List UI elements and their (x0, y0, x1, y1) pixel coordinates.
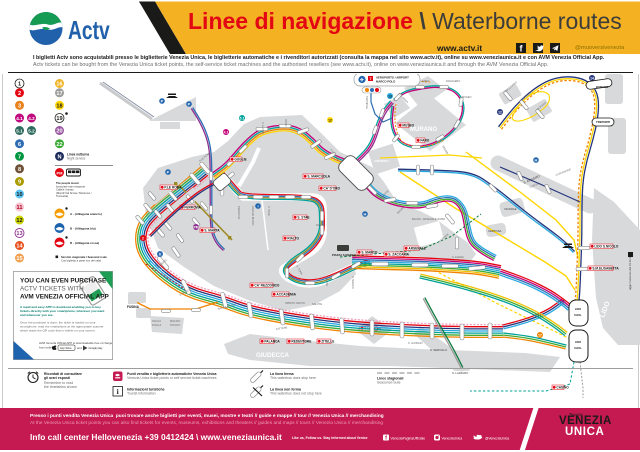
svg-text:ACCADEMIA: ACCADEMIA (276, 293, 296, 297)
svg-text:STUCKY: STUCKY (170, 323, 181, 327)
svg-text:S. ZACCARIA: S. ZACCARIA (388, 253, 409, 257)
svg-text:S.M.E.: S.M.E. (574, 346, 582, 350)
svg-text:S. STAE: S. STAE (267, 206, 271, 216)
svg-text:14: 14 (590, 76, 594, 80)
svg-text:gli orari esposti: gli orari esposti (44, 376, 70, 380)
svg-text:Seasonal route: Seasonal route (377, 381, 401, 385)
svg-text:13: 13 (16, 231, 22, 237)
svg-text:PM: PM (193, 225, 198, 229)
svg-text:Night service: Night service (67, 157, 86, 161)
svg-text:3: 3 (18, 103, 21, 109)
svg-text:18: 18 (56, 103, 62, 109)
svg-text:VIGNOLE: VIGNOLE (504, 207, 517, 211)
svg-text:8: 8 (18, 167, 21, 173)
svg-text:and whenever you are.: and whenever you are. (20, 313, 53, 317)
svg-text:S. ELENA: S. ELENA (452, 255, 464, 259)
svg-text:Google play: Google play (89, 346, 104, 350)
svg-text:This waterbus does stop here: This waterbus does stop here (270, 376, 316, 380)
svg-text:RIALTO: RIALTO (316, 223, 325, 227)
svg-text:SPIRITO SANTO: SPIRITO SANTO (285, 301, 305, 305)
svg-text:REDENTORE: REDENTORE (291, 340, 311, 344)
svg-text:CERTOSA: CERTOSA (488, 229, 502, 233)
svg-text:LIDO: LIDO (575, 340, 581, 344)
svg-text:S. SERVOLO: S. SERVOLO (430, 348, 448, 352)
svg-text:17: 17 (56, 91, 62, 97)
svg-text:2: 2 (142, 236, 144, 240)
svg-text:SACCA: SACCA (152, 319, 161, 323)
svg-text:CIMITERO: CIMITERO (374, 159, 389, 163)
svg-text:S. GIORGIO: S. GIORGIO (408, 341, 423, 345)
svg-text:S. MARCO: S. MARCO (351, 276, 355, 289)
svg-text:17: 17 (538, 333, 542, 337)
svg-text:This waterbus does not stop he: This waterbus does not stop here (270, 392, 322, 396)
svg-text:MARCO POLO: MARCO POLO (376, 80, 396, 84)
svg-text:S. MARCO: S. MARCO (361, 251, 377, 255)
svg-text:aggiornamento del 01.11.2014: aggiornamento del 01.11.2014 (628, 252, 632, 290)
svg-text:i: i (117, 387, 119, 396)
svg-text:i: i (257, 204, 258, 209)
svg-text:4.1: 4.1 (16, 116, 23, 121)
svg-text:FARO: FARO (422, 79, 429, 83)
svg-text:CA' REZZONICO: CA' REZZONICO (254, 284, 280, 288)
svg-text:13: 13 (388, 94, 392, 98)
svg-text:15: 15 (16, 256, 22, 262)
svg-text:the timetables shown: the timetables shown (44, 385, 77, 389)
svg-text:CA' D'ORO: CA' D'ORO (323, 187, 340, 191)
svg-text:4.1: 4.1 (224, 130, 229, 134)
svg-text:ARSENALE: ARSENALE (408, 247, 426, 251)
svg-text:SALUTE: SALUTE (325, 276, 329, 286)
svg-text:S. MARTA: S. MARTA (204, 229, 220, 233)
svg-text:5.1: 5.1 (16, 128, 23, 133)
svg-text:PALANCA: PALANCA (264, 340, 280, 344)
svg-text:12: 12 (328, 118, 332, 122)
svg-text:R - (Alilaguna rossa): R - (Alilaguna rossa) (70, 241, 99, 245)
svg-text:MUSEO: MUSEO (462, 95, 472, 99)
svg-text:Servizio stagionale / Seasonal: Servizio stagionale / Seasonal route (61, 255, 107, 259)
svg-text:AVM Venezia Official APP is do: AVM Venezia Official APP is downloadable… (39, 341, 113, 345)
svg-text:TERMINAL: TERMINAL (365, 96, 369, 110)
svg-text:Con biglietto a parte non del: Con biglietto a parte non del valid (61, 258, 101, 262)
svg-text:4.2: 4.2 (28, 116, 35, 121)
svg-text:11: 11 (17, 205, 23, 211)
svg-text:P: P (167, 170, 170, 175)
svg-text:12: 12 (498, 110, 502, 114)
svg-text:7: 7 (18, 154, 21, 160)
svg-text:B - (Alilaguna blu): B - (Alilaguna blu) (70, 227, 96, 231)
svg-text:from both: from both (39, 346, 52, 350)
svg-text:and: and (77, 346, 82, 350)
svg-text:14: 14 (16, 244, 23, 250)
svg-text:19: 19 (56, 116, 62, 122)
svg-text:which reads the QR code that i: which reads the QR code that is visible … (20, 329, 96, 333)
svg-text:GUGLIE: GUGLIE (234, 158, 246, 162)
svg-text:FERROVIA: FERROVIA (237, 206, 241, 220)
svg-text:AVM VENEZIA OFFICIAL APP: AVM VENEZIA OFFICIAL APP (20, 294, 109, 301)
svg-text:5.1: 5.1 (240, 116, 245, 120)
svg-text:VeneziaUnica: VeneziaUnica (442, 437, 463, 441)
svg-text:16: 16 (56, 82, 62, 88)
svg-text:VeneziaPaginaUfficiale: VeneziaPaginaUfficiale (391, 437, 426, 441)
svg-text:NAVAGERO: NAVAGERO (446, 79, 460, 83)
svg-text:GIUDECCA: GIUDECCA (256, 352, 290, 359)
svg-text:PM: PM (57, 170, 64, 175)
svg-text:P: P (161, 99, 164, 104)
svg-text:Venezia Unica ticket points or: Venezia Unica ticket points or self serv… (127, 376, 217, 380)
svg-text:App Store: App Store (60, 346, 72, 350)
svg-text:f: f (385, 436, 387, 442)
svg-text:Tranvetta): Tranvetta) (56, 194, 68, 198)
svg-text:6: 6 (159, 252, 161, 256)
svg-text:SALUTE: SALUTE (312, 302, 322, 306)
svg-text:BACINI - ARSENALE NORD: BACINI - ARSENALE NORD (412, 217, 445, 221)
svg-text:S.M.ELISABETTA: S.M.ELISABETTA (592, 267, 619, 271)
svg-text:20: 20 (56, 129, 62, 135)
svg-text:22: 22 (56, 142, 62, 148)
svg-text:TREPORTI: TREPORTI (596, 120, 610, 124)
svg-text:P: P (188, 102, 191, 107)
svg-text:FUSINA: FUSINA (127, 305, 140, 309)
svg-text:9: 9 (18, 180, 21, 186)
svg-text:1: 1 (18, 82, 21, 88)
svg-text:5.2: 5.2 (28, 128, 35, 133)
svg-text:12: 12 (16, 218, 22, 224)
svg-text:RIALTO: RIALTO (287, 237, 299, 241)
svg-text:2: 2 (18, 91, 21, 97)
svg-text:S. STAE: S. STAE (297, 216, 309, 220)
svg-text:MOLINO: MOLINO (170, 319, 180, 323)
svg-text:Tourist information: Tourist information (127, 392, 156, 396)
svg-text:MURANO: MURANO (410, 127, 437, 133)
svg-text:6: 6 (18, 142, 21, 148)
svg-text:S.M.E.: S.M.E. (574, 313, 582, 317)
svg-text:P.LE ROMA: P.LE ROMA (164, 186, 182, 190)
svg-text:FARO: FARO (420, 139, 429, 143)
svg-text:YOU CAN EVEN PURCHASE: YOU CAN EVEN PURCHASE (20, 278, 107, 285)
svg-text:PIAZZA S.MARCO: PIAZZA S.MARCO (332, 253, 357, 257)
svg-text:LIDO S.NICOLO: LIDO S.NICOLO (594, 245, 618, 249)
svg-text:ORTO: ORTO (284, 119, 288, 126)
svg-text:A - (Alilaguna arancio): A - (Alilaguna arancio) (70, 212, 102, 216)
svg-text:ACTV TICKETS WITH: ACTV TICKETS WITH (20, 286, 84, 293)
svg-text:FISOLA: FISOLA (152, 323, 161, 327)
svg-text:H: H (535, 158, 538, 163)
svg-text:BURANO: BURANO (596, 85, 609, 89)
svg-text:H: H (364, 212, 367, 217)
svg-text:FERROVIA: FERROVIA (184, 206, 201, 210)
svg-text:S. ALVISE: S. ALVISE (261, 122, 265, 134)
svg-text:N: N (57, 154, 61, 160)
svg-text:LIDO: LIDO (575, 307, 581, 311)
svg-text:@VeneziaUnica: @VeneziaUnica (485, 437, 509, 441)
svg-text:S. MARCUOLA: S. MARCUOLA (307, 175, 330, 179)
svg-text:10: 10 (16, 192, 22, 198)
svg-text:ZITELLE: ZITELLE (321, 340, 334, 344)
svg-text:RIVA DE BIASIO: RIVA DE BIASIO (251, 206, 255, 225)
